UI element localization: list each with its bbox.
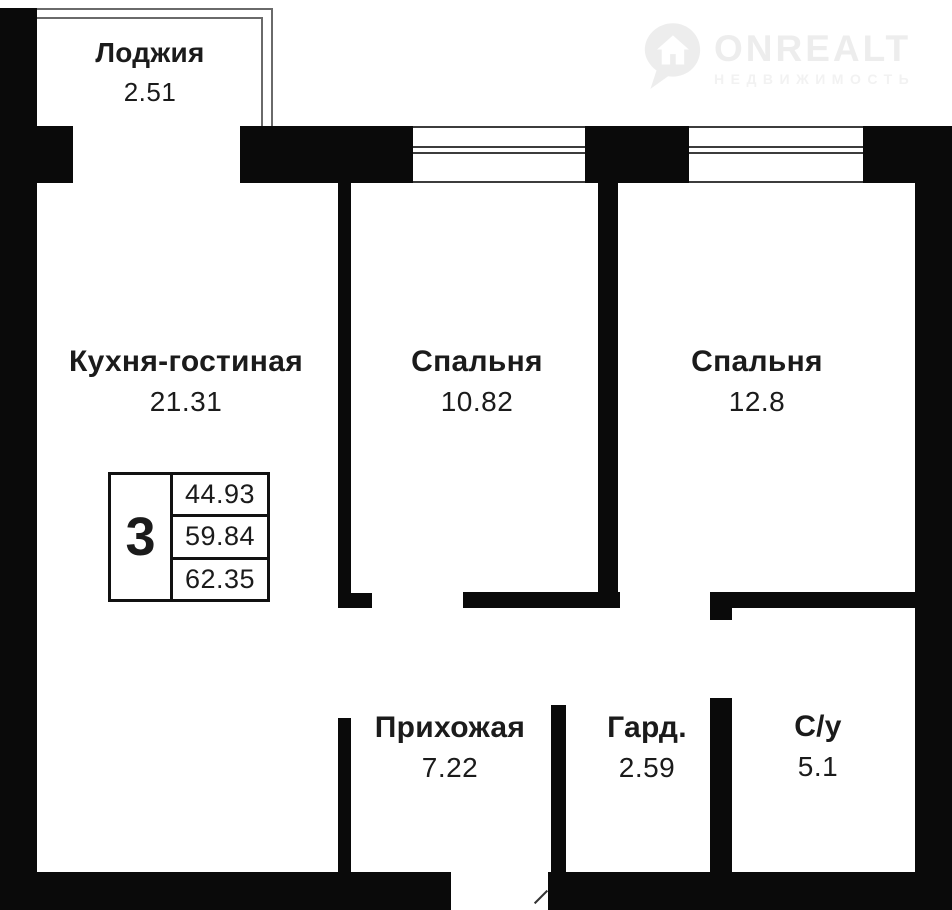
wall-exterior-bottom-left (0, 872, 451, 910)
wall-top-loggia-pier (37, 126, 73, 183)
stamp-total-area: 62.35 (173, 560, 267, 599)
stamp-living-area: 44.93 (173, 475, 267, 517)
location-pin-house-icon (642, 22, 702, 95)
room-area-bedroom1: 10.82 (327, 386, 627, 418)
stamp-rooms-count: 3 (111, 475, 173, 599)
window-bedroom2-glass-line-1 (689, 146, 863, 148)
wall-exterior-left (0, 8, 37, 910)
window-bedroom1-outer-line (413, 126, 585, 128)
room-name-bathroom: С/у (738, 710, 898, 744)
wall-exterior-bottom-right (548, 872, 952, 910)
wall-kitchen-divider-foot (338, 593, 372, 608)
window-bedroom2-inner-line (689, 181, 863, 183)
stamp-area-values: 44.93 59.84 62.35 (173, 475, 267, 599)
window-bedroom1-glass-line-1 (413, 146, 585, 148)
window-bedroom1-inner-line (413, 181, 585, 183)
room-area-hallway: 7.22 (300, 752, 600, 784)
room-label-bathroom: С/у 5.1 (738, 710, 898, 783)
wall-bedroom1-bottom (463, 592, 620, 608)
room-area-kitchen-living: 21.31 (36, 386, 336, 418)
room-name-bedroom2: Спальня (607, 345, 907, 379)
floor-plan: Лоджия 2.51 Кухня-гостиная 21.31 Спальня… (0, 0, 952, 910)
onrealt-brand-name: ONREALT (714, 30, 915, 68)
onrealt-logo: ONREALT НЕДВИЖИМОСТЬ (642, 22, 915, 95)
onrealt-logo-text: ONREALT НЕДВИЖИМОСТЬ (714, 30, 915, 87)
room-area-bathroom: 5.1 (738, 751, 898, 783)
wall-bedroom2-bottom (710, 592, 952, 608)
room-label-wardrobe: Гард. 2.59 (567, 711, 727, 784)
room-label-hallway: Прихожая 7.22 (300, 711, 600, 784)
window-bedroom2-outer-line (689, 126, 863, 128)
room-label-bedroom2: Спальня 12.8 (607, 345, 907, 418)
wall-top-kitchen-segment (240, 126, 413, 183)
window-bedroom2-glass-line-2 (689, 152, 863, 154)
wall-bathroom-door-jamb (710, 608, 732, 620)
room-area-bedroom2: 12.8 (607, 386, 907, 418)
room-label-loggia: Лоджия 2.51 (0, 36, 300, 108)
stamp-usable-area: 59.84 (173, 517, 267, 559)
wall-top-right-corner (863, 126, 952, 183)
loggia-outline-top-outer (37, 8, 273, 10)
room-name-hallway: Прихожая (300, 711, 600, 745)
window-bedroom1-glass-line-2 (413, 152, 585, 154)
wall-top-between-windows-pier (585, 126, 689, 183)
wall-exterior-right (915, 183, 952, 910)
room-name-wardrobe: Гард. (567, 711, 727, 745)
apartment-stamp-table: 3 44.93 59.84 62.35 (108, 472, 270, 602)
room-name-bedroom1: Спальня (327, 345, 627, 379)
loggia-outline-top-inner (37, 17, 263, 19)
room-name-loggia: Лоджия (0, 36, 300, 70)
room-label-bedroom1: Спальня 10.82 (327, 345, 627, 418)
room-name-kitchen-living: Кухня-гостиная (36, 345, 336, 379)
entrance-door-mark (534, 890, 548, 904)
room-area-loggia: 2.51 (0, 76, 300, 108)
onrealt-brand-subtitle: НЕДВИЖИМОСТЬ (714, 71, 915, 87)
room-area-wardrobe: 2.59 (567, 752, 727, 784)
room-label-kitchen-living: Кухня-гостиная 21.31 (36, 345, 336, 418)
